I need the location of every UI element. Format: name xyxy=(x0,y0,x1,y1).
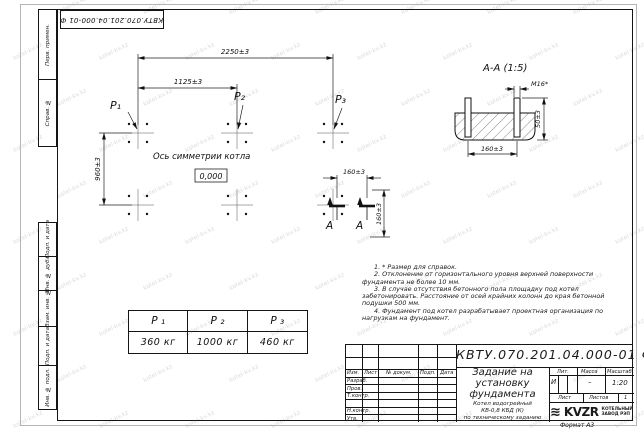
load-label-p1: P₁ xyxy=(110,99,121,112)
load-table-header-p3: P ₃ xyxy=(248,311,307,332)
col-data: Дата xyxy=(440,370,453,376)
drawing-title: Задание на установку фундамента xyxy=(456,367,549,400)
scale-header: Масштаб xyxy=(607,369,632,375)
load-label-p2: P₂ xyxy=(234,90,246,103)
dim-cut-horizontal: 160±3 xyxy=(343,168,365,176)
note-2: 2. Отклонение от горизонтального уровня … xyxy=(362,271,630,286)
margin-box-perv-primen: Перв. примен. xyxy=(38,9,57,80)
product-name: Котел водогрейный КВ-0,8 КБД (К) по техн… xyxy=(456,401,549,421)
margin-box-podp-data-2: Подп. и дата xyxy=(38,326,57,366)
anchor-bolt-right xyxy=(514,98,520,137)
lit-header: Лит. xyxy=(557,369,569,375)
note-3: 3. В случае отсутствия бетонного пола пл… xyxy=(362,286,630,308)
load-table-value-p1: 360 кг xyxy=(129,332,188,353)
dim-depth: 960±3 xyxy=(94,157,102,181)
col-ndokum: № докум. xyxy=(386,370,412,376)
margin-box-vzam-inv: Взам. инв. № xyxy=(38,290,57,327)
dim-half-width: 1125±3 xyxy=(174,78,202,86)
sheets-value: 1 xyxy=(624,395,627,401)
load-point-leaders xyxy=(128,105,342,129)
organization-name: КОТЕЛЬНЫЙ ЗАВОД РЭП xyxy=(601,407,633,417)
organization-cell: ≋ KVZR КОТЕЛЬНЫЙ ЗАВОД РЭП xyxy=(549,402,634,422)
watermark-text: kotel-kv.kz xyxy=(0,179,2,200)
axis-of-symmetry-label: Ось симметрии котла xyxy=(153,152,250,162)
load-table-header-p1: P ₁ xyxy=(129,311,188,332)
section-title: А-А (1:5) xyxy=(482,63,527,74)
load-table: P ₁ P ₂ P ₃ 360 кг 1000 кг 460 кг xyxy=(128,310,308,354)
col-list: Лист xyxy=(364,370,377,376)
mass-value: – xyxy=(588,378,592,386)
sheets-label: Листов xyxy=(589,395,608,401)
drawing-sheet: kotel-kv.kzkotel-kv.kzkotel-kv.kzkotel-k… xyxy=(0,0,644,430)
load-table-value-p3: 460 кг xyxy=(248,332,307,353)
load-label-p3: P₃ xyxy=(335,93,347,106)
lit-value: И xyxy=(551,378,556,386)
format-label: Формат А3 xyxy=(560,422,594,429)
section-cut-marks: А А xyxy=(325,197,375,232)
technical-notes: 1. * Размер для справок. 2. Отклонение о… xyxy=(362,264,630,322)
cut-arrow-icon xyxy=(327,197,333,205)
row-tkontr: Т.контр. xyxy=(347,393,369,399)
level-mark-value: 0,000 xyxy=(200,172,223,181)
mass-header: Масса xyxy=(581,369,598,375)
anchor-bolt-clusters xyxy=(122,117,349,221)
kvzr-waves-icon: ≋ xyxy=(550,406,561,419)
load-table-value-p2: 1000 кг xyxy=(188,332,247,353)
row-razrab: Разраб. xyxy=(347,378,367,384)
dim-cut-vertical: 160±3 xyxy=(375,203,383,225)
document-number: КВТУ.070.201.04.000-01 Ф xyxy=(456,347,634,362)
margin-box-inv-podl: Инв. № подл. xyxy=(38,365,57,410)
dim-bolt-height: 50±3 xyxy=(534,110,542,128)
row-nkontr: Н.контр. xyxy=(347,408,370,414)
rotated-doc-number: КВТУ.070.201.04.000-01 Ф xyxy=(60,16,163,24)
rotated-doc-number-stamp: КВТУ.070.201.04.000-01 Ф xyxy=(60,10,164,29)
section-a-a-view: А-А (1:5) М16* 50±3 160±3 xyxy=(428,55,638,173)
kvzr-logo-text: KVZR xyxy=(564,405,599,419)
margin-box-podp-data-1: Подп. и дата xyxy=(38,222,57,257)
note-4: 4. Фундамент под котел разрабатывает про… xyxy=(362,308,630,323)
foundation-plan-view: 2250±3 1125±3 960±3 xyxy=(58,28,430,250)
sheet-label: Лист xyxy=(558,395,571,401)
load-table-header-p2: P ₂ xyxy=(188,311,247,332)
margin-box-sprav-no: Справ. № xyxy=(38,79,57,147)
watermark-text: kotel-kv.kz xyxy=(0,363,2,384)
col-izm: Изм. xyxy=(347,370,359,376)
cut-arrow-icon xyxy=(357,197,363,205)
margin-box-inv-dubl: Инв. № дубл. xyxy=(38,256,57,291)
watermark-text: kotel-kv.kz xyxy=(0,87,2,108)
cut-letter-right: А xyxy=(355,220,363,232)
row-prov: Пров. xyxy=(347,386,362,392)
dim-thread: М16* xyxy=(531,80,549,88)
cut-letter-left: А xyxy=(325,220,333,232)
watermark-text: kotel-kv.kz xyxy=(0,0,2,16)
dim-bolt-spacing: 160±3 xyxy=(481,145,503,153)
anchor-bolt-left xyxy=(465,98,471,137)
scale-value: 1:20 xyxy=(612,379,628,387)
dim-total-width: 2250±3 xyxy=(221,48,249,56)
col-podp: Подп. xyxy=(420,370,436,376)
row-utv: Утв. xyxy=(347,416,358,422)
title-block: Изм. Лист № докум. Подп. Дата Разраб. Пр… xyxy=(345,344,633,421)
watermark-text: kotel-kv.kz xyxy=(0,271,2,292)
